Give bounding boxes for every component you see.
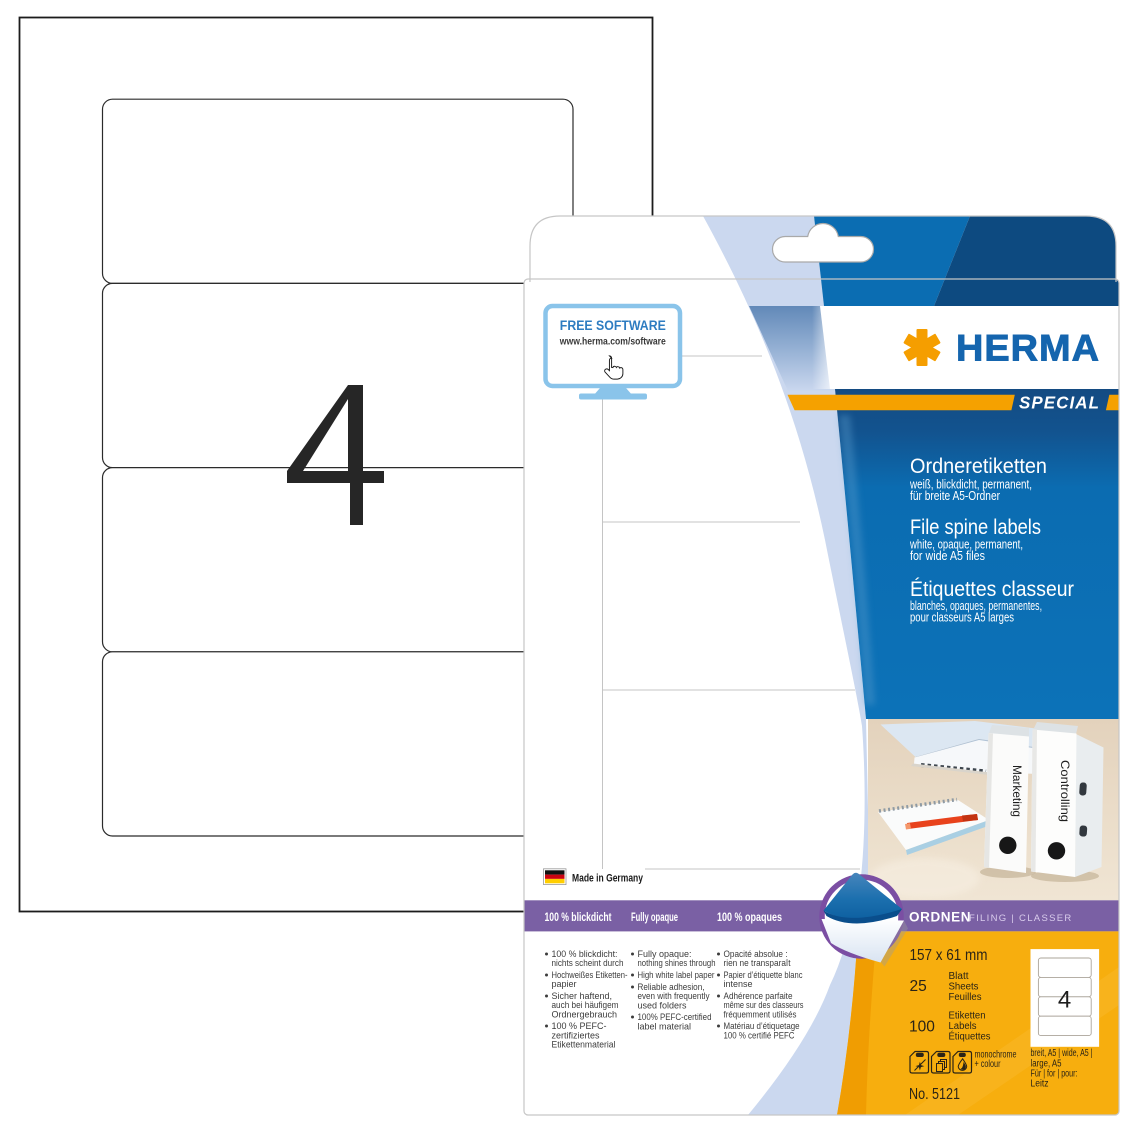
svg-text:for wide A5 files: for wide A5 files — [910, 549, 985, 563]
svg-text:File spine labels: File spine labels — [910, 515, 1041, 539]
svg-text:25: 25 — [910, 978, 927, 995]
svg-text:SPECIAL: SPECIAL — [1019, 393, 1100, 413]
svg-text:breit, A5 | wide, A5 |: breit, A5 | wide, A5 | — [1031, 1048, 1093, 1059]
svg-text:FILING | CLASSER: FILING | CLASSER — [969, 913, 1073, 924]
svg-text:Étiquettes classeur: Étiquettes classeur — [910, 576, 1074, 601]
svg-text:Made in Germany: Made in Germany — [572, 873, 644, 885]
svg-text:Etiketten: Etiketten — [949, 1010, 986, 1021]
svg-text:No. 5121: No. 5121 — [909, 1086, 960, 1103]
svg-text:www.herma.com/software: www.herma.com/software — [559, 337, 666, 348]
svg-text:Etikettenmaterial: Etikettenmaterial — [552, 1040, 616, 1050]
svg-text:100 % opaques: 100 % opaques — [717, 912, 782, 924]
svg-text:Ordnergebrauch: Ordnergebrauch — [552, 1009, 618, 1019]
svg-text:High white label paper: High white label paper — [638, 970, 715, 980]
svg-text:fréquemment utilisés: fréquemment utilisés — [724, 1009, 797, 1019]
svg-text:4: 4 — [1058, 987, 1071, 1014]
svg-text:100: 100 — [909, 1019, 935, 1036]
svg-text:157 x 61 mm: 157 x 61 mm — [910, 947, 988, 964]
svg-text:100 % blickdicht: 100 % blickdicht — [545, 912, 612, 924]
svg-text:Leitz: Leitz — [1031, 1079, 1049, 1090]
svg-text:für breite A5-Ordner: für breite A5-Ordner — [910, 489, 1000, 503]
svg-text:Labels: Labels — [949, 1021, 977, 1032]
svg-text:pour classeurs A5 larges: pour classeurs A5 larges — [910, 611, 1014, 625]
svg-text:Fully opaque: Fully opaque — [631, 912, 678, 924]
svg-text:ORDNEN: ORDNEN — [909, 910, 971, 925]
svg-text:Blatt: Blatt — [949, 971, 969, 982]
svg-text:FREE SOFTWARE: FREE SOFTWARE — [560, 318, 666, 333]
svg-text:Ordneretiketten: Ordneretiketten — [910, 454, 1047, 478]
svg-text:nichts scheint durch: nichts scheint durch — [552, 958, 624, 968]
svg-text:Marketing: Marketing — [1010, 765, 1024, 817]
svg-text:papier: papier — [552, 979, 577, 989]
svg-text:Sheets: Sheets — [949, 982, 979, 993]
svg-text:intense: intense — [724, 979, 753, 989]
svg-text:label material: label material — [638, 1021, 692, 1031]
svg-text:Étiquettes: Étiquettes — [949, 1029, 991, 1042]
svg-text:HERMA: HERMA — [956, 327, 1100, 369]
svg-text:rien ne transparaît: rien ne transparaît — [724, 958, 791, 968]
svg-text:Controlling: Controlling — [1058, 760, 1072, 822]
svg-text:100 % certifié PEFC: 100 % certifié PEFC — [724, 1030, 795, 1040]
svg-text:Feuilles: Feuilles — [949, 992, 982, 1003]
svg-text:nothing shines through: nothing shines through — [638, 958, 716, 968]
svg-text:+ colour: + colour — [975, 1059, 1001, 1070]
svg-text:used folders: used folders — [638, 1000, 688, 1010]
